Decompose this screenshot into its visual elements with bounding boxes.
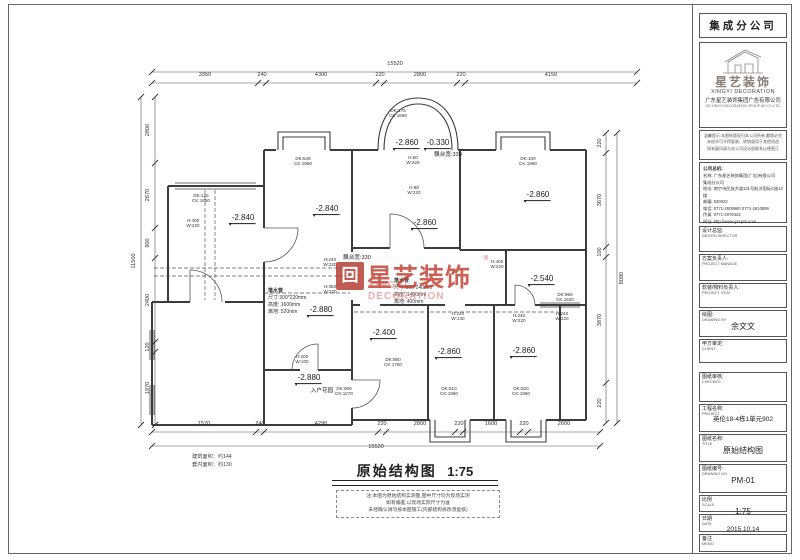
plan-annotation: H:240W:220: [512, 313, 525, 323]
field-sublabel: PROJECT MANAGE: [700, 262, 786, 266]
field-label: 方案负责人:: [700, 255, 786, 262]
elevation-label: -2.860: [413, 219, 438, 229]
title-underline: [332, 480, 498, 486]
dimension-label: 2800: [414, 72, 426, 78]
plan-annotation: H:80W:220: [407, 185, 420, 195]
notice-line: 如有疑问请与本公司设计部联系以便更正: [702, 146, 784, 152]
drawing-sheet: 1552033502404300220280022041501570240429…: [0, 0, 800, 560]
dimension-label: 120: [145, 342, 151, 351]
dimension-label: 4150: [545, 72, 557, 78]
drawing-notes: 注:本图为原始结构实测图,图中尺寸均为现场实测如有偏差,以现场实际尺寸为准未经确…: [336, 490, 500, 518]
field-label: 设计总监:: [700, 227, 786, 234]
titleblock-field-checked: 图纸审核:CHECKED: [699, 372, 787, 402]
dimension-label: 220: [456, 72, 465, 78]
plan-annotation: DK:100CK:1960: [519, 156, 537, 166]
watermark-logo-icon: 回: [336, 262, 364, 290]
company-name-cn: 广东星艺装饰集团广告有限公司: [700, 96, 786, 104]
area-line: 建筑面积：约144: [192, 454, 232, 462]
dimension-label: 15520: [387, 61, 403, 67]
field-label: 甲方审定:: [700, 340, 786, 347]
dimension-label: 3670: [597, 194, 603, 206]
titleblock-field-project-item: 软装/物料负责人:PROJECT ITEM: [699, 283, 787, 308]
plan-annotation: DK:960CK:1270: [335, 386, 353, 396]
dimension-label: 240: [255, 421, 264, 427]
field-label: 绘图:: [700, 311, 786, 318]
dimension-label: 240: [257, 72, 266, 78]
titleblock-field-drawing-no-: 图纸编号:DRAWING NO.PM-01: [699, 464, 787, 493]
drawing-note-line: 注:本图为原始结构实测图,图中尺寸均为现场实测: [340, 493, 496, 500]
plan-annotation: 入户花园: [311, 388, 333, 394]
area-line: 套内面积：约130: [192, 462, 232, 470]
field-label: 软装/物料负责人:: [700, 284, 786, 291]
watermark: 回 XINGYI DECORATION 星艺装饰 ®: [334, 258, 484, 302]
dimension-label: 220: [519, 421, 528, 427]
company-name-en: GD XINGYI DECORATION GROUP AD CO.,LTD.: [704, 104, 781, 108]
dimension-label: 1970: [145, 382, 151, 394]
dimension-label: 2670: [145, 189, 151, 201]
logo-cn: 星艺装饰: [700, 76, 786, 89]
dimension-label: 3350: [199, 72, 211, 78]
titleblock-field-scale: 比例SCALE1:75: [699, 495, 787, 512]
plan-annotation: H:200W:100: [295, 354, 308, 364]
titleblock-separator: [692, 4, 693, 554]
drawing-note-line: 如有偏差,以现场实际尺寸为准: [340, 500, 496, 507]
plan-annotation: H:240W:140: [451, 311, 464, 321]
field-label: 备注: [700, 535, 786, 542]
dimension-label: 2400: [145, 294, 151, 306]
dimension-label: 2600: [558, 421, 570, 427]
plan-annotation: 飘台宽:330: [434, 152, 462, 158]
drawing-note-line: 未经确认请勿按本图施工(内部结构拆改须复核): [340, 507, 496, 514]
titleblock-field-project-manage: 方案负责人:PROJECT MANAGE: [699, 254, 787, 281]
field-value: 余文文: [700, 322, 786, 332]
dimension-label: 4290: [315, 421, 327, 427]
plan-annotation: 落水管尺寸:300*220mm高度: 1600mm离地: 520mm: [268, 288, 306, 316]
contact-line: 网址: http://www.gzxyzs.com: [703, 219, 783, 226]
titleblock-field-memo: 备注MEMO: [699, 534, 787, 552]
elevation-label: -0.330: [426, 139, 451, 149]
field-sublabel: CLIENT: [700, 347, 786, 351]
titleblock-field-project: 工程名称:PROJECT英伦18-4栋1单元902: [699, 404, 787, 432]
branch-name: 集成分公司: [699, 13, 787, 38]
field-value: PM-01: [700, 476, 786, 486]
dimension-label: 1600: [485, 421, 497, 427]
dimension-label: 11500: [131, 253, 137, 268]
plan-annotation: DK:520CK:1960: [512, 386, 530, 396]
field-label: 工程名称:: [700, 405, 786, 412]
field-sublabel: CHECKED: [700, 380, 786, 384]
plan-annotation: H:240W:220: [555, 311, 568, 321]
dimension-label: 2800: [414, 421, 426, 427]
plan-annotation: DK:960CK:1620: [556, 292, 574, 302]
field-label: 日期: [700, 515, 786, 522]
dimension-label: 15520: [368, 444, 384, 450]
dimension-label: 100: [597, 247, 603, 256]
drawing-title-text: 原始结构图: [357, 463, 437, 479]
field-label: 比例: [700, 496, 786, 503]
elevation-label: -2.540: [530, 275, 555, 285]
elevation-label: -2.400: [372, 329, 397, 339]
field-label: 图纸审核:: [700, 373, 786, 380]
drawing-scale-text: 1:75: [447, 464, 473, 479]
elevation-label: -2.880: [309, 306, 334, 316]
contact-line: 地址: 南宁市民族大道131号航洋国际C座12楼: [703, 186, 783, 199]
contact-line: 名称: 广东星艺装饰集团(广告)有限公司: [703, 173, 783, 180]
dimension-label: 220: [375, 72, 384, 78]
elevation-label: -2.840: [315, 205, 340, 215]
logo-en: XINGYI DECORATION: [700, 89, 786, 95]
plan-annotation: H:400W:220: [490, 259, 503, 269]
elevation-label: -2.840: [231, 214, 256, 224]
plan-annotation: DK:540CK:1950: [294, 156, 312, 166]
elevation-label: -2.860: [512, 347, 537, 357]
elevation-label: -2.880: [297, 374, 322, 384]
plan-annotation: DK:125CK:1650: [192, 193, 210, 203]
plan-annotation: DK:175CK:1850: [389, 108, 407, 118]
titleblock-field-design-director: 设计总监:DESIGN DIRECTOR: [699, 226, 787, 252]
plan-annotation: H:400W:220: [186, 218, 199, 228]
registered-mark: ®: [484, 256, 488, 262]
notice-line: 未经许可不得复制、转借或用于其他用途: [702, 139, 784, 145]
field-label: 图纸编号:: [700, 465, 786, 472]
dimension-label: 1570: [198, 421, 210, 427]
field-sublabel: MEMO: [700, 542, 786, 546]
plan-annotation: DK:510CK:1960: [440, 386, 458, 396]
field-label: 图纸名称:: [700, 435, 786, 442]
dimension-label: 220: [597, 138, 603, 147]
field-value: 2015.10.14: [700, 526, 786, 534]
drawing-title: 原始结构图 1:75: [330, 461, 500, 481]
dimension-label: 3870: [597, 314, 603, 326]
company-logo-block: 星艺装饰 XINGYI DECORATION 广东星艺装饰集团广告有限公司 GD…: [699, 42, 787, 128]
house-sketch-icon: [721, 46, 765, 76]
titleblock: 集成分公司 星艺装饰 XINGYI DECORATION 广东星艺装饰集团广告有…: [694, 4, 794, 554]
dimension-label: 220: [454, 421, 463, 427]
dimension-label: 2800: [145, 124, 151, 136]
field-sublabel: PROJECT ITEM: [700, 291, 786, 295]
titleblock-field-title: 图纸名称:TITLE原始结构图: [699, 434, 787, 462]
elevation-label: -2.860: [437, 348, 462, 358]
field-value: 英伦18-4栋1单元902: [700, 416, 786, 424]
dimension-label: 900: [145, 238, 151, 247]
elevation-label: -2.860: [395, 139, 420, 149]
titleblock-field-client: 甲方审定:CLIENT: [699, 339, 787, 363]
company-contact-info: 公司总机:名称: 广东星艺装饰集团(广告)有限公司集成分公司地址: 南宁市民族大…: [699, 162, 787, 223]
dimension-label: 220: [377, 421, 386, 427]
contact-title: 公司总机:: [703, 165, 783, 172]
area-summary: 建筑面积：约144套内面积：约130: [192, 454, 232, 470]
copyright-notice: 温馨提示:本图纸版权归本公司所有,翻版必究未经许可不得复制、转借或用于其他用途如…: [699, 130, 787, 160]
titleblock-field-drawing-by: 绘图:DRAWING BY余文文: [699, 310, 787, 337]
dimension-label: 8080: [619, 272, 625, 284]
titleblock-field-date: 日期DATE2015.10.14: [699, 514, 787, 532]
watermark-cn-text: 星艺装饰: [367, 258, 471, 294]
field-sublabel: DESIGN DIRECTOR: [700, 234, 786, 238]
plan-annotation: DK:950CK:1750: [384, 357, 402, 367]
field-value: 原始结构图: [700, 446, 786, 456]
elevation-label: -2.860: [526, 191, 551, 201]
dimension-label: 4300: [315, 72, 327, 78]
plan-annotation: H:60W:220: [406, 155, 419, 165]
dimension-label: 220: [597, 398, 603, 407]
